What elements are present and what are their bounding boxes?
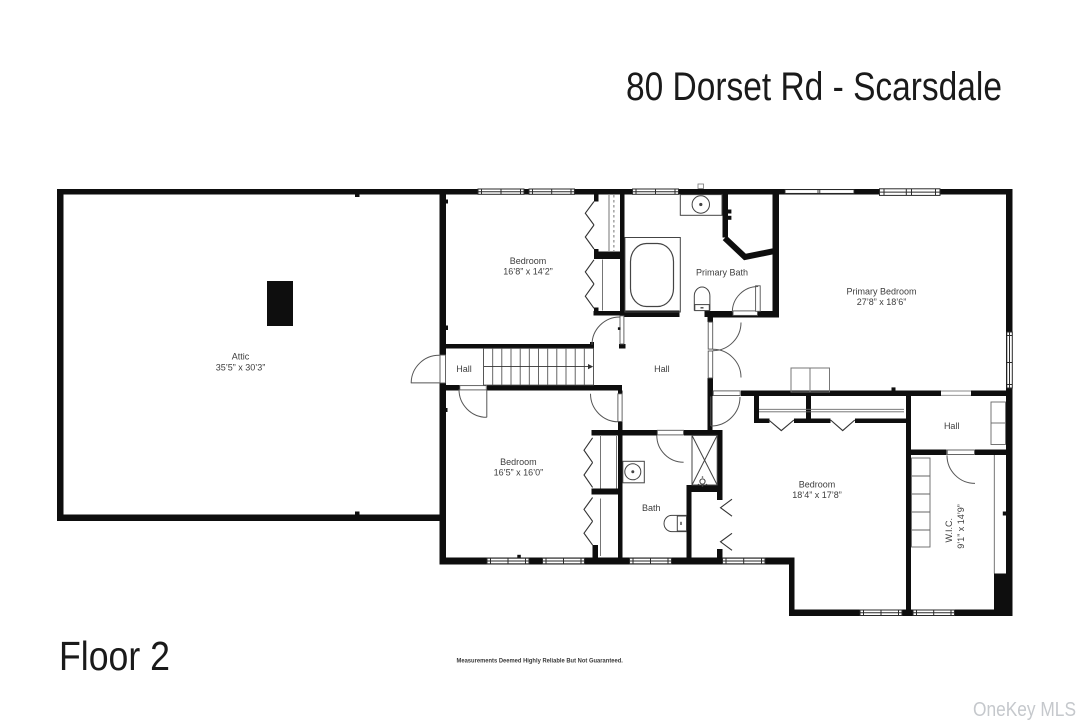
svg-text:Hall: Hall [944, 421, 960, 431]
svg-text:80 Dorset Rd - Scarsdale: 80 Dorset Rd - Scarsdale [626, 65, 1002, 109]
svg-text:16’8” x 14’2”: 16’8” x 14’2” [503, 267, 553, 277]
svg-text:27’8” x 18’6”: 27’8” x 18’6” [857, 297, 907, 307]
svg-text:35’5” x 30’3”: 35’5” x 30’3” [216, 362, 266, 372]
svg-text:Bedroom: Bedroom [510, 256, 547, 266]
svg-text:18’4” x 17’8”: 18’4” x 17’8” [792, 490, 842, 500]
svg-text:Hall: Hall [654, 364, 670, 374]
svg-text:Primary Bedroom: Primary Bedroom [846, 286, 916, 296]
svg-text:9’1” x 14’9”: 9’1” x 14’9” [956, 504, 966, 549]
svg-text:Bedroom: Bedroom [500, 457, 537, 467]
svg-text:16’5” x 16’0”: 16’5” x 16’0” [494, 467, 544, 477]
svg-text:Attic: Attic [232, 352, 250, 362]
svg-text:Hall: Hall [456, 364, 472, 374]
svg-text:Bedroom: Bedroom [799, 480, 836, 490]
svg-text:Floor 2: Floor 2 [59, 633, 170, 679]
svg-text:OneKey MLS: OneKey MLS [973, 699, 1076, 720]
svg-text:Primary Bath: Primary Bath [696, 268, 748, 278]
svg-text:Bath: Bath [642, 503, 661, 513]
svg-text:Measurements Deemed Highly Rel: Measurements Deemed Highly Reliable But … [457, 657, 624, 664]
svg-text:W.I.C.: W.I.C. [944, 518, 954, 543]
